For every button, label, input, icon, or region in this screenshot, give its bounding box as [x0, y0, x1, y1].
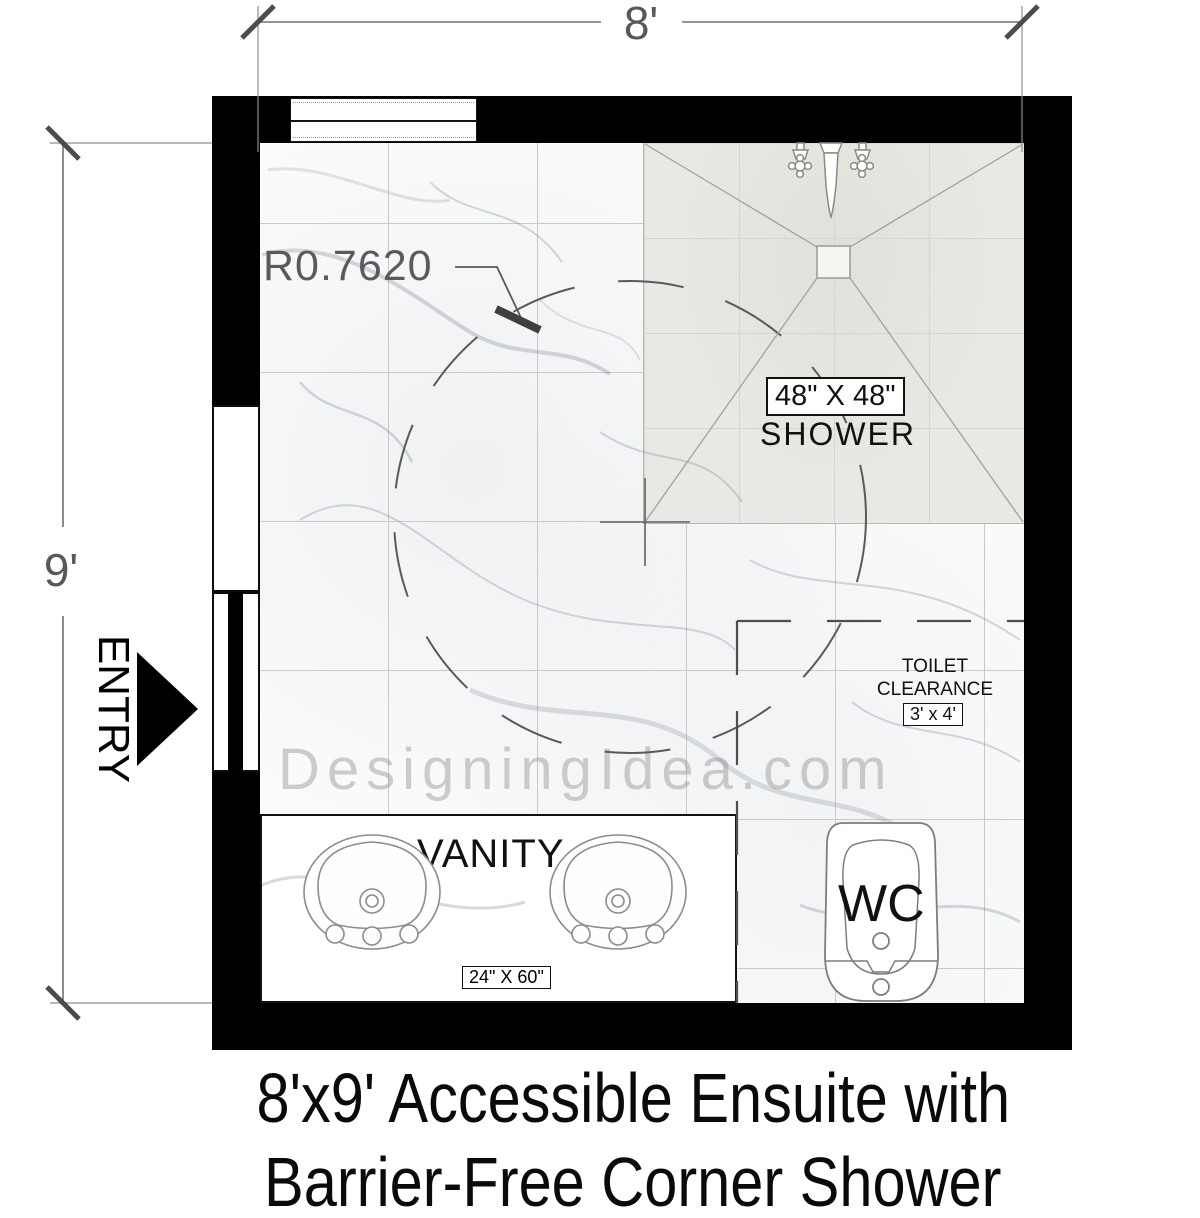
shower-size-badge: 48" X 48": [766, 377, 905, 416]
dimension-height-label: 9': [26, 543, 96, 597]
pocket-door-leaf: [212, 592, 260, 772]
window: [290, 98, 477, 142]
vanity-label: VANITY: [417, 832, 565, 877]
toilet-clearance-size-badge: 3' x 4': [903, 703, 963, 726]
wall-left-lower: [212, 772, 260, 1003]
title-line-1: 8'x9' Accessible Ensuite with: [256, 1056, 1010, 1140]
title-line-2: Barrier-Free Corner Shower: [264, 1140, 1001, 1218]
toilet-clearance-label: TOILET CLEARANCE: [845, 655, 1025, 701]
vanity-counter: VANITY 24" X 60": [260, 814, 737, 1003]
wall-right: [1024, 143, 1072, 1003]
wc-label: WC: [838, 874, 925, 934]
shower-label: SHOWER: [760, 416, 916, 453]
wall-bottom: [212, 1003, 1072, 1050]
window-divider: [291, 120, 476, 122]
vanity-size-badge: 24" X 60": [462, 966, 551, 989]
entry-label: ENTRY: [91, 634, 135, 784]
door-panel: [228, 592, 243, 772]
window-pane-line: [293, 102, 474, 103]
toilet-clearance-line1: TOILET: [902, 656, 968, 677]
window-pane-line: [293, 137, 474, 138]
floorplan-title: 8'x9' Accessible Ensuite with Barrier-Fr…: [33, 1056, 1200, 1218]
floor-plan-canvas: VANITY 24" X 60" DesigningIdea.com: [0, 0, 1200, 1218]
toilet-clearance-line2: CLEARANCE: [877, 679, 993, 700]
wall-left-upper: [212, 143, 260, 405]
dimension-width-label: 8': [598, 0, 684, 50]
watermark: DesigningIdea.com: [278, 736, 894, 803]
entry-arrow-icon: [137, 652, 198, 766]
pocket-door-housing: [212, 405, 260, 592]
turning-radius-label: R0.7620: [263, 242, 433, 291]
shower-floor: [643, 143, 1025, 524]
